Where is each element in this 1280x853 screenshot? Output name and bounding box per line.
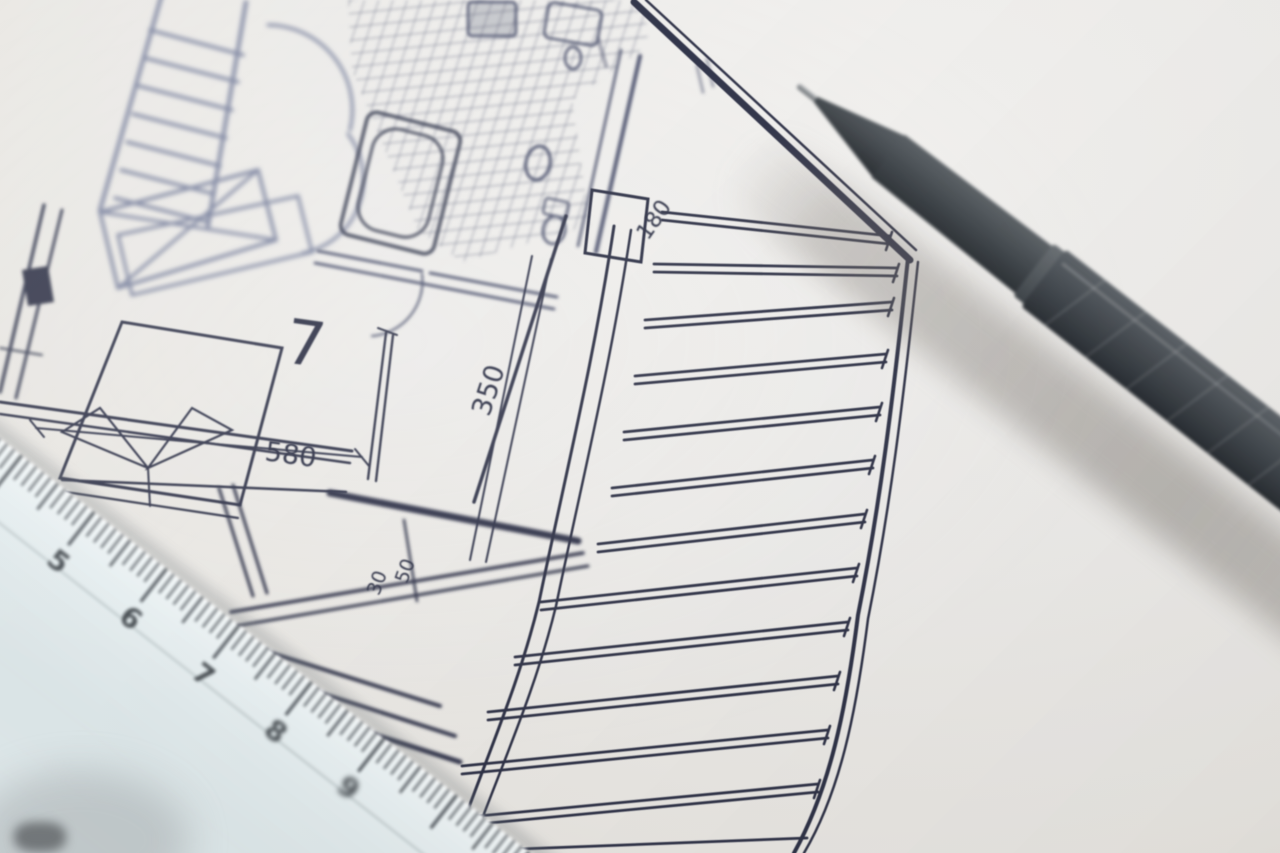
left-wall: [0, 205, 62, 398]
bathroom: [315, 0, 713, 336]
pillow-shape: [148, 408, 232, 468]
room-number-label: 7: [281, 305, 330, 383]
photo-scene: 7 580 350 30 50 180 4 5 6 7 8 9: [0, 0, 1280, 853]
dimension-580-label: 580: [263, 436, 318, 474]
ruler-corner-mark: [14, 822, 66, 852]
dimension-30-label: 30: [363, 568, 392, 598]
